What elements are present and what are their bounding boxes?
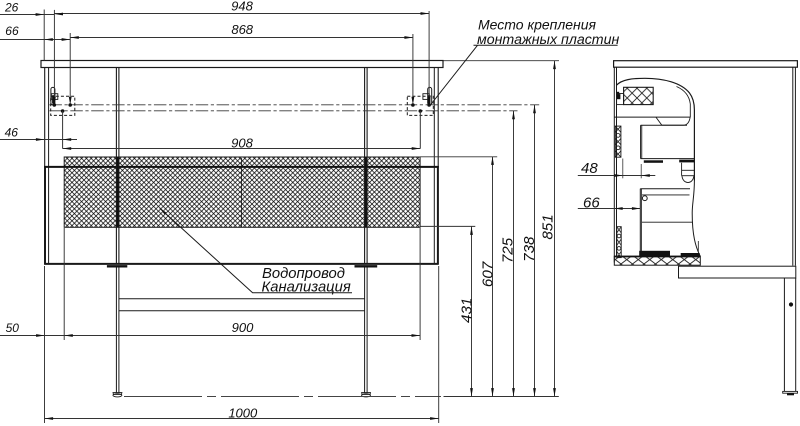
svg-text:431: 431 [458, 298, 475, 323]
svg-text:66: 66 [5, 24, 19, 38]
svg-text:738: 738 [521, 236, 538, 262]
svg-text:607: 607 [480, 261, 497, 287]
svg-text:26: 26 [4, 1, 19, 15]
svg-text:Место крепления: Место крепления [478, 16, 597, 32]
svg-text:50: 50 [6, 321, 20, 335]
svg-text:725: 725 [499, 237, 516, 263]
svg-text:48: 48 [581, 160, 598, 177]
svg-text:46: 46 [5, 126, 19, 140]
svg-text:948: 948 [231, 0, 253, 13]
svg-text:868: 868 [231, 22, 253, 37]
svg-text:908: 908 [231, 135, 253, 150]
svg-text:1000: 1000 [228, 406, 258, 421]
svg-text:66: 66 [583, 195, 600, 212]
svg-text:900: 900 [232, 320, 254, 335]
svg-text:851: 851 [539, 214, 556, 239]
